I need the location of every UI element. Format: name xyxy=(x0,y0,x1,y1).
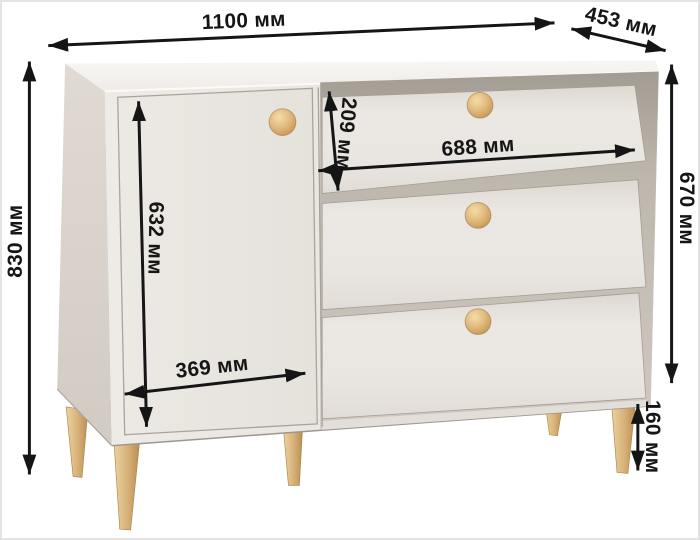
dim-door-height-label: 632 мм xyxy=(143,201,167,275)
drawer-stack xyxy=(318,71,658,429)
dim-body-height: 670 мм xyxy=(672,65,698,384)
diagram-canvas: 1100 мм 453 мм 830 мм 670 мм 632 мм 369 … xyxy=(2,2,698,538)
dim-depth: 453 мм xyxy=(571,2,665,50)
dim-leg-height: 160 мм xyxy=(638,400,664,473)
drawer-2-knob xyxy=(465,203,491,229)
leg-front-left xyxy=(114,439,140,530)
dim-overall-width-arrow xyxy=(48,23,554,46)
dim-overall-height-label: 830 мм xyxy=(4,205,27,278)
dim-overall-width-label: 1100 мм xyxy=(201,8,286,35)
dim-overall-height: 830 мм xyxy=(4,62,29,475)
cabinet-left-side-face xyxy=(57,64,112,446)
dim-leg-height-label: 160 мм xyxy=(641,400,664,473)
dim-overall-width: 1100 мм xyxy=(48,8,554,46)
door-knob xyxy=(269,109,296,136)
furniture-dimension-diagram: 1100 мм 453 мм 830 мм 670 мм 632 мм 369 … xyxy=(0,0,700,540)
leg-middle xyxy=(283,430,302,486)
drawer-3-knob xyxy=(465,309,491,335)
dim-body-height-label: 670 мм xyxy=(675,172,698,245)
drawer-1-knob xyxy=(467,92,493,118)
